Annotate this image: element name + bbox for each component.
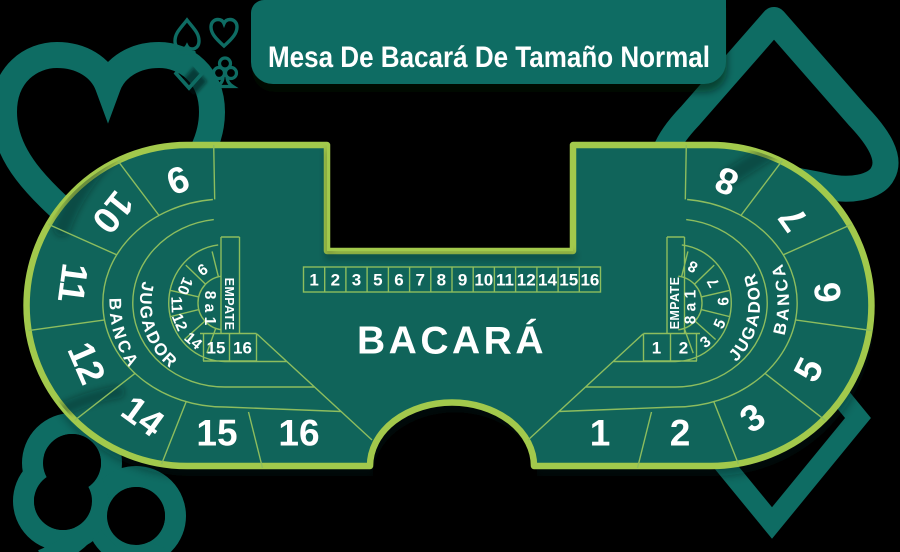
svg-text:15: 15 bbox=[196, 413, 237, 454]
svg-text:EMPATE: EMPATE bbox=[222, 278, 236, 331]
svg-text:15: 15 bbox=[559, 271, 578, 290]
svg-text:2: 2 bbox=[331, 271, 340, 290]
svg-text:5: 5 bbox=[373, 271, 382, 290]
svg-text:2: 2 bbox=[679, 339, 688, 358]
svg-text:10: 10 bbox=[474, 271, 493, 290]
svg-text:6: 6 bbox=[394, 271, 403, 290]
svg-text:1: 1 bbox=[652, 339, 661, 358]
svg-text:9: 9 bbox=[458, 271, 467, 290]
svg-text:Mesa De Bacará De Tamaño Norma: Mesa De Bacará De Tamaño Normal bbox=[268, 41, 710, 74]
svg-text:2: 2 bbox=[670, 413, 691, 454]
svg-text:3: 3 bbox=[352, 271, 361, 290]
svg-text:16: 16 bbox=[580, 271, 599, 290]
svg-text:12: 12 bbox=[517, 271, 536, 290]
svg-text:11: 11 bbox=[50, 261, 96, 305]
svg-text:15: 15 bbox=[207, 339, 226, 358]
svg-text:8 a 1: 8 a 1 bbox=[683, 289, 700, 324]
svg-text:1: 1 bbox=[309, 271, 318, 290]
svg-text:EMPATE: EMPATE bbox=[668, 277, 682, 330]
svg-text:1: 1 bbox=[590, 413, 611, 454]
svg-text:BACARÁ: BACARÁ bbox=[357, 319, 547, 363]
svg-text:16: 16 bbox=[233, 339, 252, 358]
svg-text:14: 14 bbox=[538, 271, 557, 290]
svg-text:6: 6 bbox=[715, 296, 732, 306]
svg-text:6: 6 bbox=[807, 281, 849, 304]
svg-text:16: 16 bbox=[278, 413, 319, 454]
svg-text:8 a 1: 8 a 1 bbox=[201, 291, 218, 326]
svg-text:11: 11 bbox=[496, 271, 514, 290]
svg-text:8: 8 bbox=[437, 271, 446, 290]
svg-text:7: 7 bbox=[415, 271, 424, 290]
